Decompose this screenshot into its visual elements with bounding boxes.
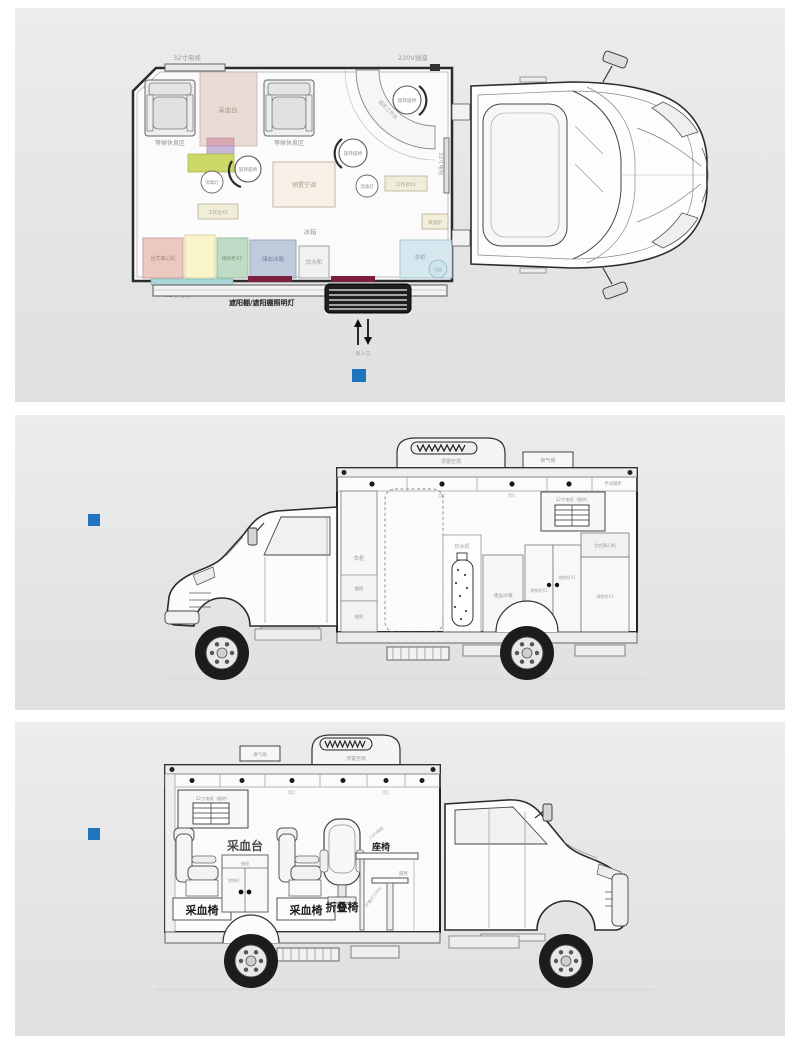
legend-marker <box>88 514 100 526</box>
blueprint-page: 32寸电视 220V插座 等候休息区 等候休息区 采血台 旋转座椅 消毒灯 <box>0 0 800 1042</box>
label-vent-fan: 换气扇 <box>253 751 267 758</box>
tv-strip-bottom <box>151 279 233 285</box>
label-rotating-seat: 旋转座椅 <box>344 150 363 157</box>
label-blood-fridge: 储血冰箱 <box>493 592 512 599</box>
side-mirror-icon <box>602 50 628 69</box>
label-disinfection-lamp: 消毒灯 <box>360 183 374 190</box>
label-awning: 遮阳棚/遮阳棚照明灯 <box>229 298 295 307</box>
label-microwave: 微波炉 <box>428 219 442 226</box>
label-waiting-area: 等候休息区 <box>155 139 185 147</box>
label-downlight: 筒灯 <box>508 493 516 498</box>
flip-tv: 32寸电视（翻转） <box>178 790 248 828</box>
label-fridge: 冰箱 <box>304 227 318 236</box>
label-downlight: 筒灯 <box>288 790 296 795</box>
roof-ac-unit: 顶置空调 <box>397 438 505 468</box>
label-water-dispenser: 饮水机 <box>306 258 323 266</box>
front-wheel <box>539 934 593 988</box>
chassis <box>165 932 440 961</box>
legend-marker <box>352 369 366 382</box>
side-right-drawing: 换气扇 顶置空调 筒灯 筒灯 筒灯 <box>15 722 785 1036</box>
entry-step <box>277 948 339 961</box>
label-centrifuge: 台式离心机 <box>150 255 175 262</box>
entry-step <box>387 647 449 660</box>
label-roof-ac: 顶置空调 <box>441 458 461 465</box>
panel-side-view-right: 换气扇 顶置空调 筒灯 筒灯 筒灯 <box>15 722 785 1036</box>
waiting-seat <box>145 80 195 136</box>
label-blood-chair: 采血椅 <box>185 903 219 917</box>
entry-arrows-icon <box>354 319 372 345</box>
label-trash: 垃圾 <box>434 266 442 272</box>
cab-side-view <box>165 507 337 640</box>
cab-top-view <box>452 50 708 299</box>
side-mirror-icon <box>248 528 257 545</box>
panel-side-view-left: 顶置空调 换气扇 筒灯 筒灯 筒灯 手动踏步 衣柜 抽屉 <box>15 415 785 710</box>
label-centrifuge: 台式离心机 <box>594 542 617 549</box>
label-worktable: 工作台X1 <box>396 181 416 188</box>
label-vent-fan: 换气扇 <box>540 457 555 464</box>
front-wheel <box>195 626 249 680</box>
panel-floor-plan: 32寸电视 220V插座 等候休息区 等候休息区 采血台 旋转座椅 消毒灯 <box>15 8 785 402</box>
middle-cabinet: 抽屉 储物柜 <box>222 855 268 912</box>
socket-icon <box>430 64 440 71</box>
side-left-drawing: 顶置空调 换气扇 筒灯 筒灯 筒灯 手动踏步 衣柜 抽屉 <box>15 415 785 710</box>
label-worktable: 工作台X1 <box>208 209 228 216</box>
ground-shadow <box>155 988 655 991</box>
label-waiting-area: 等候休息区 <box>274 139 304 147</box>
label-drawer: 抽屉 <box>241 860 249 867</box>
front-bumper <box>612 874 628 926</box>
label-storage-x1: 储物柜X1 <box>530 587 548 593</box>
floor-plan-drawing: 32寸电视 220V插座 等候休息区 等候休息区 采血台 旋转座椅 消毒灯 <box>15 8 785 402</box>
label-downlight: 筒灯 <box>382 790 390 795</box>
label-manual-step: 手动踏步 <box>604 480 622 487</box>
label-storage-x1: 储物柜X1 <box>558 574 576 580</box>
label-stool: 圆凳 <box>399 870 408 877</box>
front-bumper <box>165 611 199 624</box>
rear-wheel <box>224 934 278 988</box>
led-strip <box>248 276 292 282</box>
label-drawer: 抽屉 <box>355 613 364 620</box>
water-bottle-icon <box>452 553 473 626</box>
label-blood-table: 采血台 <box>218 105 238 114</box>
label-rotating-seat: 旋转座椅 <box>398 97 417 104</box>
waiting-seat <box>264 80 314 136</box>
yellow-cabinet <box>185 235 215 278</box>
label-tv-flip: 32寸电视（翻转） <box>196 795 231 802</box>
label-reserved-ac: 预置空调 <box>292 181 316 189</box>
side-mirror-icon <box>602 281 628 300</box>
label-rotating-seat: 旋转座椅 <box>239 166 258 173</box>
wall-tv-right <box>444 138 449 193</box>
box-body: 筒灯 筒灯 筒灯 手动踏步 衣柜 抽屉 抽屉 饮水机 <box>337 468 637 632</box>
rear-wheel <box>500 626 554 680</box>
label-folding-chair: 折叠椅 <box>326 900 359 914</box>
label-storage-x1: 储物柜X1 <box>596 593 614 599</box>
cab-side-view <box>445 800 628 948</box>
label-entrance: 出入口 <box>355 350 370 357</box>
label-water-dispenser: 饮水机 <box>454 543 469 550</box>
box-body: 筒灯 筒灯 筒灯 32寸电视（翻转） 采血椅 采血椅 <box>165 765 440 932</box>
side-mirror-icon <box>543 804 552 821</box>
storage-cabinet <box>553 545 581 632</box>
chassis <box>337 632 637 660</box>
label-tv-top: 32寸电视 <box>173 53 201 62</box>
label-tv-flip: 32寸电视（翻转） <box>556 496 591 503</box>
label-wardrobe: 衣柜 <box>353 554 365 562</box>
wall-tv-top <box>165 64 225 71</box>
label-storage: 储物柜 <box>228 877 240 883</box>
entry-steps <box>325 284 411 313</box>
legend-marker <box>88 828 100 840</box>
led-strip <box>331 276 375 282</box>
label-seat: 座椅 <box>371 841 390 853</box>
label-drawer: 抽屉 <box>355 585 364 592</box>
label-blood-fridge: 储血冰箱 <box>262 255 285 263</box>
label-roof-ac: 顶置空调 <box>346 755 365 762</box>
label-disinfection-lamp: 消毒灯 <box>205 179 219 186</box>
label-blood-table: 采血台 <box>226 838 263 853</box>
label-storage-x2: 储物柜X2 <box>222 255 243 262</box>
ground-shadow <box>165 678 645 681</box>
label-tv-right: 32寸电视 <box>437 152 445 176</box>
roof-ac-unit: 顶置空调 <box>312 735 400 765</box>
label-socket-220v: 220V插座 <box>398 53 428 62</box>
label-wardrobe: 衣柜 <box>414 253 426 261</box>
flip-tv: 32寸电视（翻转） <box>541 492 605 531</box>
label-blood-chair: 采血椅 <box>289 903 323 917</box>
